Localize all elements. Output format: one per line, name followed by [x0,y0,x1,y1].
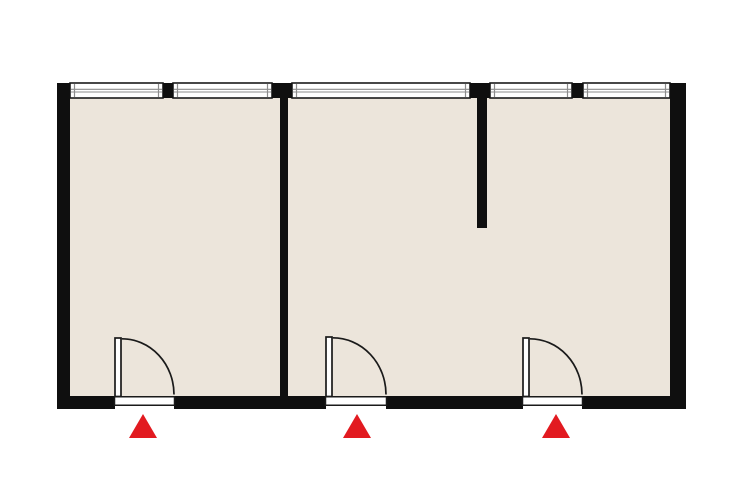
bottom-wall-segment-4 [582,396,686,409]
window-frame [292,83,470,98]
door-leaf [326,337,332,397]
floor-plan [0,0,740,493]
window [490,83,572,98]
window-frame [490,83,572,98]
window-frame [70,83,163,98]
entrance-arrow-icon [129,414,157,438]
window-frame [583,83,670,98]
bottom-wall-segment-2 [174,396,326,409]
outer-wall-right [670,83,686,409]
door-threshold [523,397,583,406]
top-wall-pier-4 [572,83,583,98]
window [292,83,470,98]
door-threshold [115,397,175,406]
entrance-arrow-icon [542,414,570,438]
interior-wall [280,95,288,397]
bottom-wall-segment-1 [57,396,115,409]
entrance-arrow-icon [343,414,371,438]
top-wall-pier-1 [163,83,173,98]
partial-wall [477,95,487,228]
door-leaf [523,338,529,397]
window [70,83,163,98]
floor-plan-canvas [0,0,740,493]
door-leaf [115,338,121,397]
outer-wall-left [57,83,70,409]
bottom-wall-segment-3 [386,396,523,409]
window [173,83,272,98]
window [583,83,670,98]
window-frame [173,83,272,98]
door-threshold [326,397,387,406]
